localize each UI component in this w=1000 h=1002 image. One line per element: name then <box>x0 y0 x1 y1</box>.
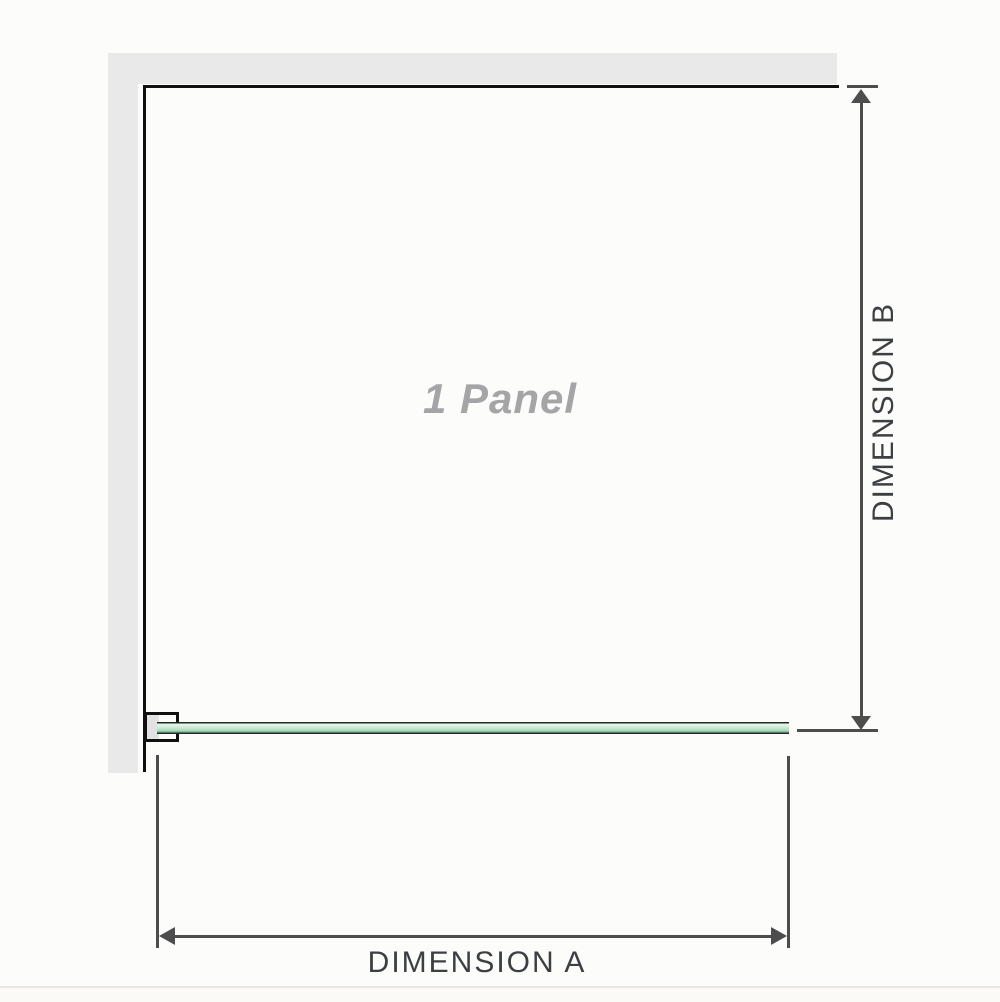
panel-count-label: 1 Panel <box>423 375 577 423</box>
dimension-a-extension-left <box>156 755 159 948</box>
panel-outline-top <box>143 85 839 88</box>
panel-outline-left <box>143 85 146 772</box>
dimension-a-extension-right <box>787 756 790 948</box>
dimension-b-arrowhead-down-icon <box>851 716 871 730</box>
dimension-b-arrowhead-up-icon <box>851 89 871 103</box>
dimension-a-label: DIMENSION A <box>368 946 587 980</box>
glass-panel-bar <box>157 722 789 734</box>
dimension-a-arrowhead-left-icon <box>159 927 175 945</box>
dimension-a-arrow-line <box>171 935 776 938</box>
wall-top-band <box>108 53 837 84</box>
dimension-b-arrow-line <box>860 99 863 719</box>
dimension-b-label: DIMENSION B <box>867 302 901 522</box>
dimension-b-tick-top <box>847 85 878 88</box>
dimension-a-arrowhead-right-icon <box>771 927 787 945</box>
wall-left-band <box>108 53 138 773</box>
